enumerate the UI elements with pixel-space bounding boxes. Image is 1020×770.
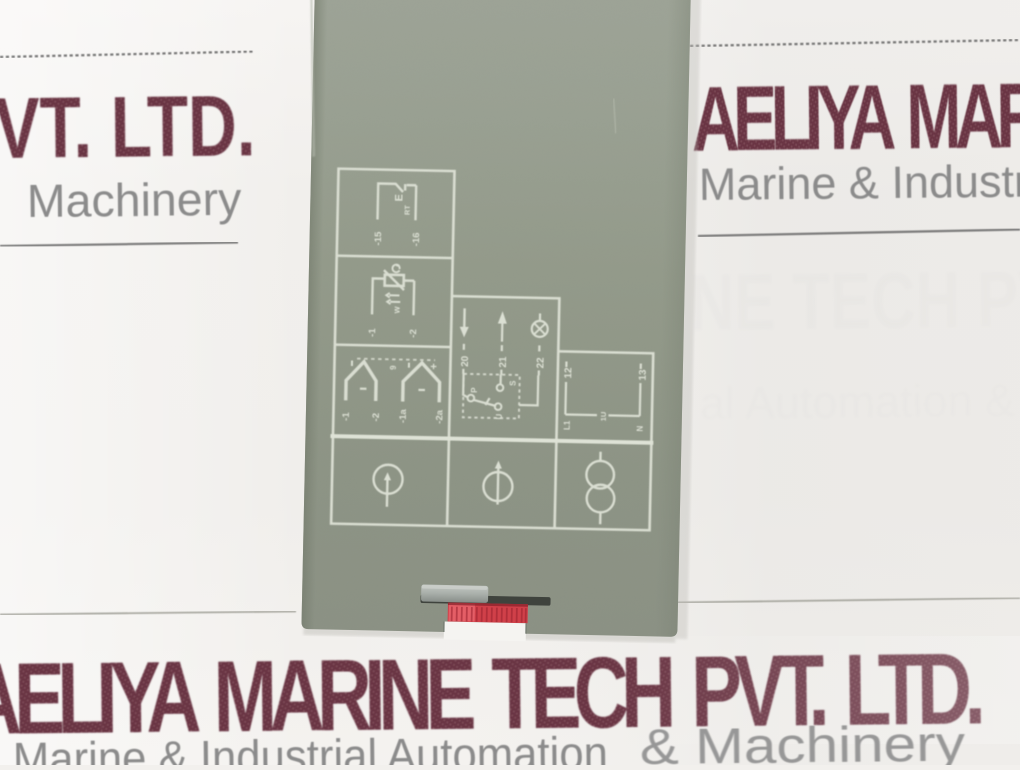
svg-text:VT. LTD.: VT. LTD.: [0, 78, 256, 177]
svg-text:Marine & Industrial: Marine & Industrial: [699, 155, 1020, 210]
svg-text:AELIYA MARINE: AELIYA MARINE: [691, 62, 1020, 170]
svg-text:al Automation & M: al Automation & M: [700, 374, 1020, 429]
svg-text:& Machinery: & Machinery: [640, 716, 966, 765]
svg-text:Marine & Industrial Automation: Marine & Industrial Automation: [13, 727, 609, 765]
svg-text:NE TECH PV: NE TECH PV: [689, 254, 1020, 348]
svg-text:Machinery: Machinery: [27, 173, 243, 227]
